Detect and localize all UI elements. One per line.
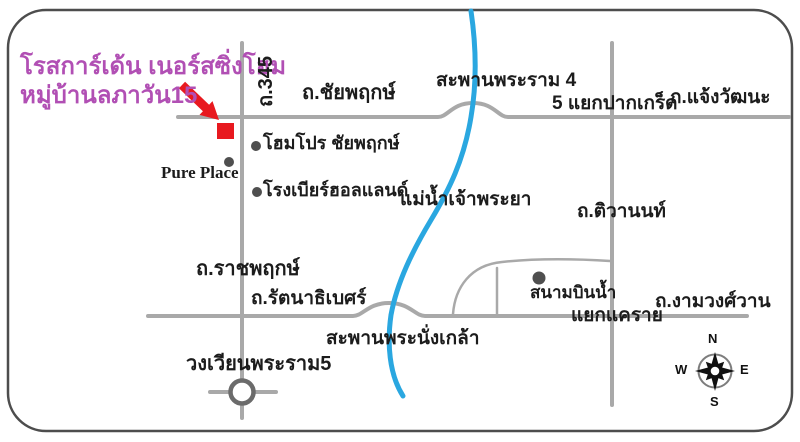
beer-holland-dot xyxy=(252,187,262,197)
homepro-dot xyxy=(251,141,261,151)
compass-s-label: S xyxy=(710,394,719,409)
compass-e-label: E xyxy=(740,362,749,377)
junction-label-pakkret: 5 แยกปากเกร็ด xyxy=(552,93,678,115)
road-label-ngamwongwan: ถ.งามวงศ์วาน xyxy=(655,291,771,313)
bridge-label-rama4: สะพานพระราม 4 xyxy=(436,70,576,92)
landmark-label-sanambinnam: สนามบินน้ำ xyxy=(530,283,616,303)
compass-rose-icon xyxy=(695,352,735,391)
road-label-ratchaphruek: ถ.ราชพฤกษ์ xyxy=(196,258,300,281)
road-label-tiwanon: ถ.ติวานนท์ xyxy=(577,201,666,223)
location-marker xyxy=(217,123,234,139)
landmark-label-pure-place: Pure Place xyxy=(161,163,239,183)
river-label-chaophraya: แม่น้ำเจ้าพระยา xyxy=(400,189,531,211)
road-label-chaiyaphruek: ถ.ชัยพฤกษ์ xyxy=(302,82,396,105)
compass-n-label: N xyxy=(708,331,717,346)
destination-title: โรสการ์เด้น เนอร์สซิ่งโฮม หมู่บ้านลภาวัน… xyxy=(20,52,286,111)
landmark-label-beer-holland: โรงเบียร์ฮอลแลนด์ xyxy=(263,180,408,201)
road-label-345: ถ.345 xyxy=(249,56,281,107)
road-label-rattanathibet: ถ.รัตนาธิเบศร์ xyxy=(251,288,366,310)
landmark-label-homepro: โฮมโปร ชัยพฤกษ์ xyxy=(263,133,400,154)
junction-label-khaerai: แยกแคราย xyxy=(571,305,663,327)
destination-title-line1: โรสการ์เด้น เนอร์สซิ่งโฮม xyxy=(20,52,286,81)
map-canvas: โรสการ์เด้น เนอร์สซิ่งโฮม หมู่บ้านลภาวัน… xyxy=(0,0,800,442)
destination-title-line2: หมู่บ้านลภาวัน15 xyxy=(20,81,286,110)
bridge-label-nangklao: สะพานพระนั่งเกล้า xyxy=(326,328,480,350)
compass-w-label: W xyxy=(675,362,687,377)
road-label-chaengwattana: ถ.แจ้งวัฒนะ xyxy=(670,87,770,109)
rama5-roundabout-circle xyxy=(231,381,254,404)
junction-label-rama5-roundabout: วงเวียนพระราม5 xyxy=(186,353,331,376)
